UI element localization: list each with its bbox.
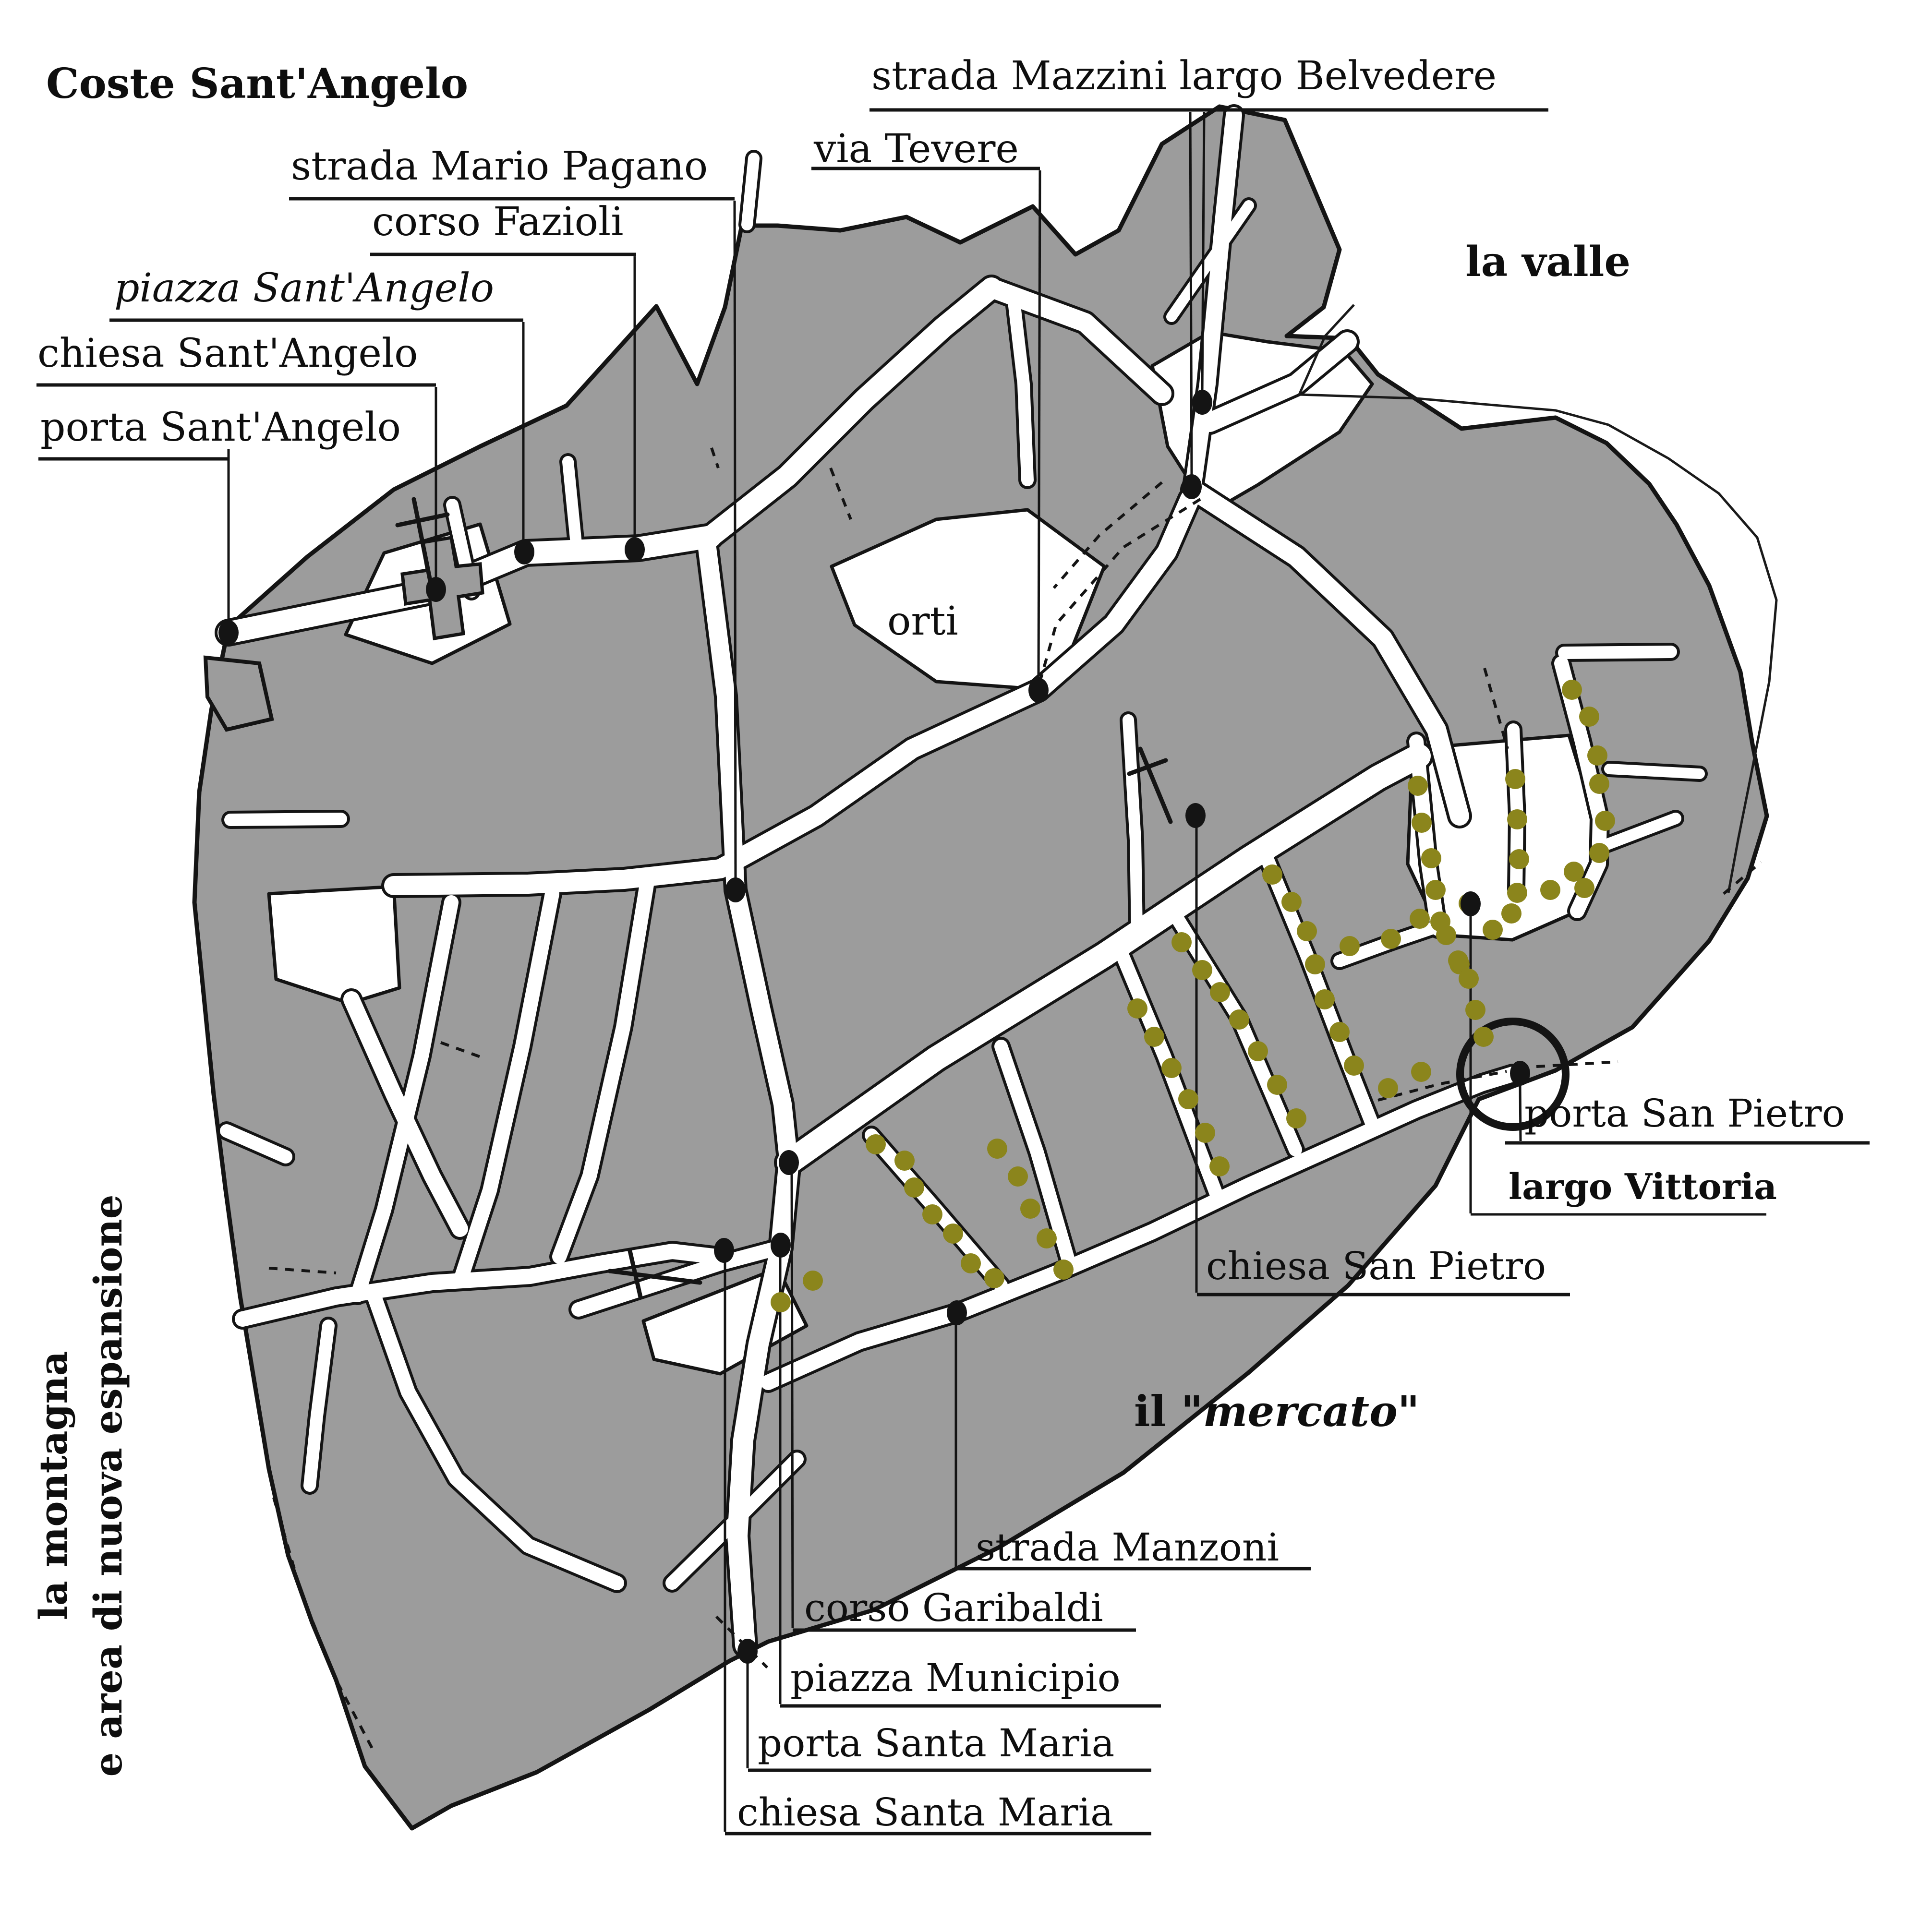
olive-route-dot — [1589, 843, 1609, 863]
place-dot — [779, 1150, 799, 1175]
olive-route-dot — [1178, 1089, 1198, 1109]
place-dot — [1510, 1061, 1530, 1086]
olive-route-dot — [1540, 880, 1560, 900]
town-map-figure: Coste Sant'Angelo strada Mazzini largo B… — [0, 0, 1932, 1920]
mercato-open-quote: " — [1181, 1386, 1203, 1436]
olive-route-dot — [1507, 883, 1527, 903]
label-strada-mario-pagano: strada Mario Pagano — [291, 147, 708, 186]
olive-route-dot — [1037, 1228, 1057, 1248]
label-il-mercato: il "mercato" — [1134, 1390, 1420, 1432]
olive-route-dot — [961, 1253, 981, 1273]
label-coste-sant-angelo: Coste Sant'Angelo — [46, 63, 468, 105]
olive-route-dot — [771, 1292, 791, 1312]
place-dot — [1028, 678, 1049, 703]
olive-route-dot — [1421, 848, 1441, 868]
olive-route-dot — [1248, 1041, 1268, 1061]
label-porta-sant-angelo: porta Sant'Angelo — [40, 408, 401, 447]
olive-route-dot — [1381, 929, 1401, 949]
leader-line — [1190, 112, 1192, 476]
olive-route-dot — [894, 1151, 915, 1171]
label-piazza-municipio: piazza Municipio — [790, 1659, 1121, 1697]
olive-route-dot — [1329, 1022, 1350, 1042]
olive-route-dot — [1161, 1058, 1182, 1078]
olive-route-dot — [1192, 960, 1212, 980]
montagna-line1: la montagna — [26, 1126, 81, 1846]
olive-route-dot — [922, 1204, 942, 1224]
olive-route-dot — [1509, 849, 1529, 869]
label-piazza-sant-angelo: piazza Sant'Angelo — [114, 269, 494, 308]
olive-route-dot — [1589, 774, 1609, 794]
olive-route-dot — [1507, 809, 1527, 829]
olive-route-dot — [1229, 1009, 1249, 1030]
olive-route-dot — [1171, 932, 1192, 952]
label-strada-mazzini-largo-belvedere: strada Mazzini largo Belvedere — [871, 57, 1497, 96]
olive-route-dot — [1262, 864, 1282, 885]
olive-route-dot — [1281, 892, 1302, 912]
place-dot — [625, 537, 645, 562]
olive-route-dot — [1340, 936, 1360, 956]
label-corso-garibaldi: corso Garibaldi — [804, 1589, 1103, 1627]
leader-line — [735, 201, 736, 879]
olive-route-dot — [1595, 811, 1615, 831]
olive-route-dot — [1267, 1075, 1287, 1095]
olive-route-dot — [1411, 1062, 1431, 1082]
olive-route-dot — [803, 1271, 823, 1291]
place-dot — [771, 1233, 791, 1258]
mercato-prefix: il — [1134, 1386, 1166, 1436]
olive-route-dot — [1587, 745, 1607, 766]
olive-route-dot — [1286, 1108, 1306, 1128]
place-dot — [426, 577, 446, 602]
olive-route-dot — [1144, 1027, 1164, 1047]
olive-route-dot — [1436, 925, 1456, 945]
olive-route-dot — [943, 1224, 963, 1244]
olive-route-dot — [1459, 969, 1479, 989]
place-dot — [947, 1300, 967, 1325]
olive-route-dot — [1315, 989, 1335, 1009]
olive-route-dot — [1008, 1166, 1028, 1187]
olive-route-dot — [1053, 1260, 1074, 1280]
leader-line — [1038, 170, 1040, 680]
place-dot — [218, 620, 239, 645]
olive-route-dot — [1344, 1056, 1364, 1076]
olive-route-dot — [1412, 813, 1432, 833]
olive-route-dot — [866, 1134, 886, 1154]
label-orti: orti — [887, 602, 958, 641]
label-via-tevere: via Tevere — [814, 130, 1019, 169]
place-dot — [514, 540, 534, 564]
olive-route-dot — [1579, 707, 1599, 727]
mercato-close-quote: " — [1398, 1386, 1420, 1436]
olive-route-dot — [1501, 903, 1521, 924]
place-dot — [1185, 803, 1206, 828]
olive-route-dot — [1505, 769, 1525, 789]
place-dot — [1182, 474, 1202, 499]
olive-route-dot — [1410, 909, 1430, 929]
olive-route-dot — [1378, 1078, 1398, 1098]
label-porta-san-pietro: porta San Pietro — [1524, 1094, 1845, 1133]
olive-route-dot — [1195, 1123, 1215, 1143]
label-chiesa-sant-angelo: chiesa Sant'Angelo — [37, 334, 418, 373]
label-la-valle: la valle — [1465, 241, 1630, 283]
label-strada-manzoni: strada Manzoni — [976, 1528, 1279, 1567]
olive-route-dot — [1425, 880, 1446, 900]
place-dot — [725, 877, 746, 902]
olive-route-dot — [1305, 954, 1325, 974]
olive-route-dot — [1483, 920, 1503, 940]
label-porta-santa-maria: porta Santa Maria — [758, 1724, 1114, 1763]
montagna-line2: e area di nuova espansione — [81, 1126, 136, 1846]
label-chiesa-santa-maria: chiesa Santa Maria — [737, 1793, 1113, 1832]
olive-route-dot — [1465, 1000, 1485, 1020]
olive-route-dot — [1473, 1027, 1494, 1047]
olive-route-dot — [1448, 950, 1468, 971]
olive-route-dot — [1297, 921, 1317, 941]
olive-route-dot — [1127, 998, 1147, 1019]
mercato-word: mercato — [1203, 1386, 1397, 1436]
place-dot — [737, 1639, 758, 1664]
place-dot — [1461, 891, 1481, 916]
label-largo-vittoria: largo Vittoria — [1509, 1169, 1777, 1205]
leader-line — [1520, 1084, 1521, 1141]
label-la-montagna: la montagna e area di nuova espansione — [26, 1126, 135, 1846]
olive-route-dot — [1209, 1156, 1230, 1176]
olive-route-dot — [987, 1139, 1007, 1159]
olive-route-dot — [1020, 1199, 1040, 1219]
leader-line — [792, 1173, 793, 1628]
olive-route-dot — [1564, 862, 1584, 882]
label-chiesa-san-pietro: chiesa San Pietro — [1206, 1247, 1546, 1285]
olive-route-dot — [984, 1268, 1004, 1288]
olive-route-dot — [1562, 680, 1582, 700]
olive-route-dot — [904, 1177, 924, 1198]
label-corso-fazioli: corso Fazioli — [372, 203, 623, 242]
place-dot — [714, 1238, 734, 1263]
olive-route-dot — [1408, 776, 1428, 796]
olive-route-dot — [1210, 982, 1230, 1002]
place-dot — [1192, 390, 1212, 415]
